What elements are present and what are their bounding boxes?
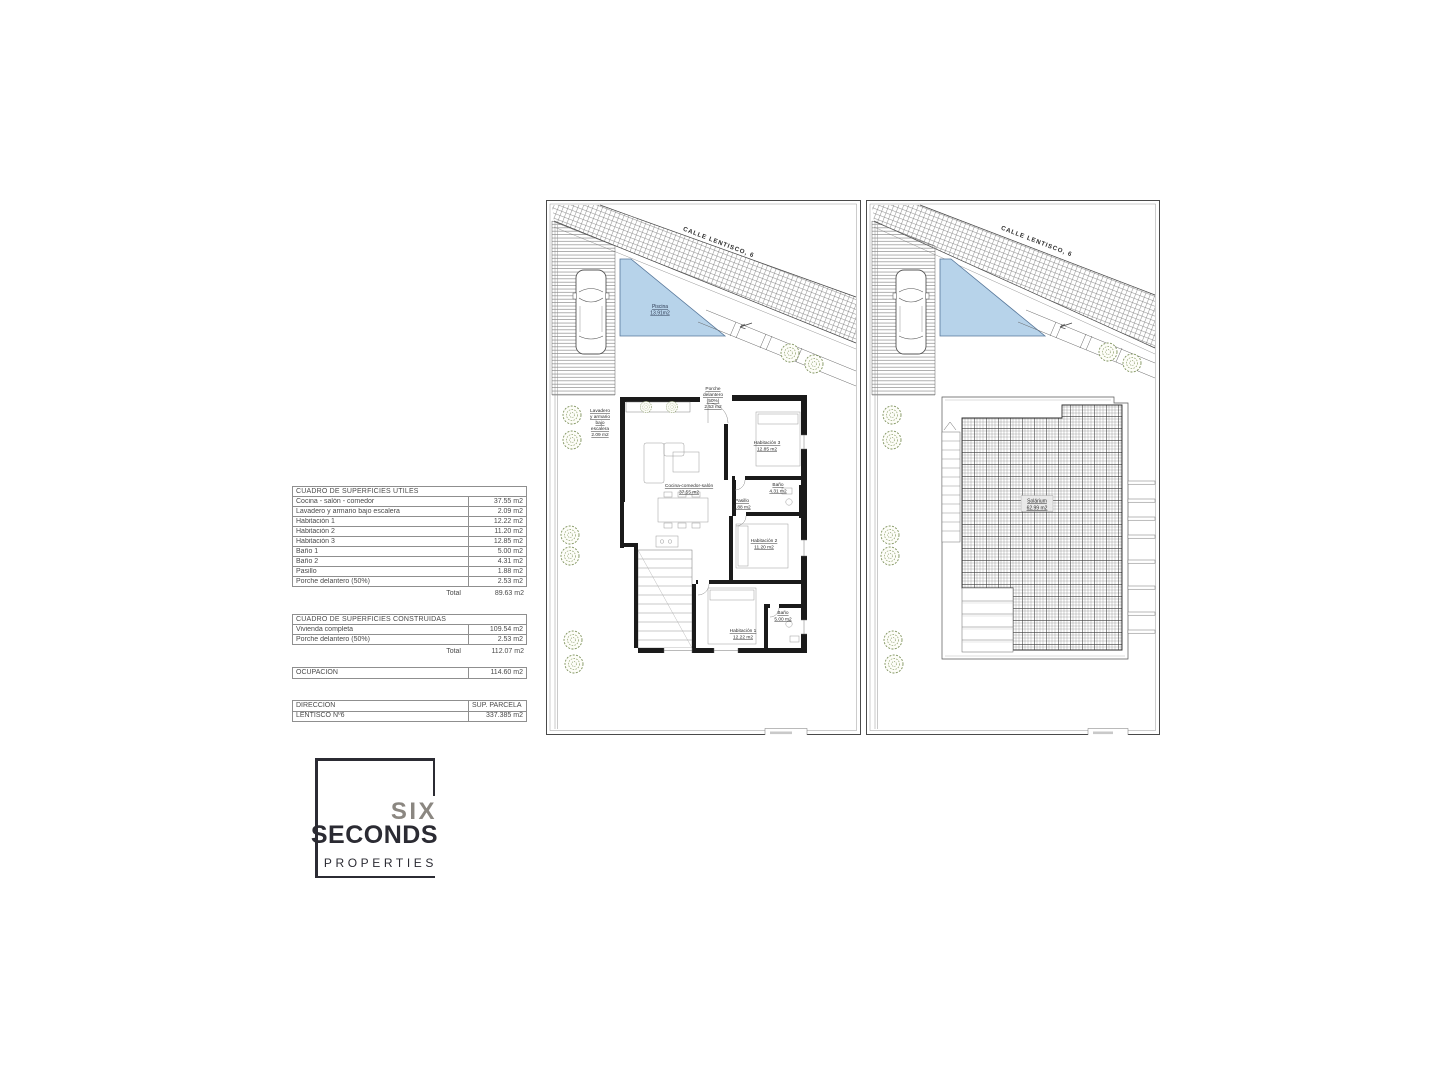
row-label: OCUPACIÓN bbox=[293, 669, 468, 677]
row-value: 4.31 m2 bbox=[468, 557, 526, 566]
row-label: Habitación 1 bbox=[293, 518, 468, 526]
row-value: 12.22 m2 bbox=[468, 517, 526, 526]
surface-tables: CUADRO DE SUPERFICIES ÚTILES Cocina - sa… bbox=[292, 486, 527, 722]
row-label: Porche delantero (50%) bbox=[293, 636, 468, 644]
page: CUADRO DE SUPERFICIES ÚTILES Cocina - sa… bbox=[0, 0, 1440, 1080]
room-label: Pasillo bbox=[735, 498, 749, 504]
table-row: Lavadero y armario bajo escalera2.09 m2 bbox=[292, 507, 527, 517]
room-label: 4.31 m2 bbox=[769, 489, 787, 495]
room-label: Lavadero bbox=[590, 408, 610, 414]
pool-label: Piscina bbox=[652, 304, 668, 310]
room-label: Habitación 2 bbox=[751, 538, 778, 544]
row-value: 109.54 m2 bbox=[468, 625, 526, 634]
row-value: 5.00 m2 bbox=[468, 547, 526, 556]
room-label: Cocina-comedor-salón bbox=[665, 483, 714, 489]
bush-icon bbox=[1099, 343, 1117, 361]
total-value: 89.63 m2 bbox=[469, 587, 527, 600]
table-row: CUADRO DE SUPERFICIES ÚTILES bbox=[292, 487, 527, 497]
room-label: Habitación 1 bbox=[730, 628, 757, 634]
table-total-row: Total112.07 m2 bbox=[292, 645, 527, 658]
room-label: (50%) bbox=[707, 398, 720, 404]
row-value: 1.88 m2 bbox=[468, 567, 526, 576]
row-label: Vivienda completa bbox=[293, 626, 468, 634]
solarium-roof: Solárium 62.99 m2 bbox=[942, 397, 1155, 659]
solarium-label: Solárium 62.99 m2 bbox=[1021, 496, 1053, 512]
porch-planter bbox=[626, 401, 690, 412]
row-value: 2.09 m2 bbox=[468, 507, 526, 516]
row-value: 337.385 m2 bbox=[468, 712, 526, 722]
logo-text-seconds: SECONDS bbox=[311, 824, 438, 847]
total-label: Total bbox=[292, 590, 469, 598]
room-label: 1.88 m2 bbox=[733, 505, 751, 511]
title-strip bbox=[1088, 729, 1128, 736]
row-label: Pasillo bbox=[293, 568, 468, 576]
table-row: LENTISCO Nº6 337.385 m2 bbox=[292, 712, 527, 723]
row-value: SUP. PARCELA bbox=[468, 701, 526, 711]
table-superficies-construidas: CUADRO DE SUPERFICIES CONSTRUIDAS Vivien… bbox=[292, 614, 527, 658]
table-row: DIRECCIÓN SUP. PARCELA bbox=[292, 701, 527, 712]
room-label: escalera bbox=[591, 426, 609, 432]
stairs bbox=[962, 588, 1013, 652]
table-row: Pasillo1.88 m2 bbox=[292, 567, 527, 577]
room-label: 5.00 m2 bbox=[774, 617, 792, 623]
room-label: Habitación 3 bbox=[754, 440, 781, 446]
roof-plan: CALLE LENTISCO, 6 bbox=[866, 200, 1160, 735]
pool-area: 13.91m2 bbox=[650, 311, 670, 317]
room-label: 2.53 m2 bbox=[704, 404, 722, 410]
room-label: Solárium bbox=[1027, 499, 1047, 505]
table-title: CUADRO DE SUPERFICIES CONSTRUIDAS bbox=[293, 616, 526, 624]
car-icon bbox=[893, 270, 929, 354]
row-value: 11.20 m2 bbox=[468, 527, 526, 536]
room-label: 12.22 m2 bbox=[733, 635, 753, 641]
bush-icon bbox=[805, 355, 823, 373]
room-label: 37.55 m2 bbox=[679, 490, 699, 496]
table-total-row: Total89.63 m2 bbox=[292, 587, 527, 600]
logo-border bbox=[315, 876, 435, 879]
table-row: Baño 24.31 m2 bbox=[292, 557, 527, 567]
bush-icon bbox=[781, 344, 799, 362]
table-row: Habitación 112.22 m2 bbox=[292, 517, 527, 527]
logo-border bbox=[315, 758, 318, 878]
house: Porche delantero (50%) 2.53 m2 Lavadero … bbox=[590, 386, 807, 653]
table-row: Porche delantero (50%)2.53 m2 bbox=[292, 577, 527, 587]
row-value: 2.53 m2 bbox=[468, 635, 526, 644]
table-title: CUADRO DE SUPERFICIES ÚTILES bbox=[293, 488, 526, 496]
row-label: Habitación 2 bbox=[293, 528, 468, 536]
total-label: Total bbox=[292, 648, 469, 656]
row-value: 12.85 m2 bbox=[468, 537, 526, 546]
room-label: delantero bbox=[703, 392, 723, 398]
row-label: LENTISCO Nº6 bbox=[293, 712, 468, 720]
row-label: Cocina - salón - comedor bbox=[293, 498, 468, 506]
table-superficies-utiles: CUADRO DE SUPERFICIES ÚTILES Cocina - sa… bbox=[292, 486, 527, 600]
table-row: OCUPACIÓN 114.60 m2 bbox=[292, 668, 527, 679]
room-label: 11.20 m2 bbox=[754, 545, 774, 551]
table-row: CUADRO DE SUPERFICIES CONSTRUIDAS bbox=[292, 615, 527, 625]
table-row: Habitación 312.85 m2 bbox=[292, 537, 527, 547]
room-label: 12.85 m2 bbox=[757, 447, 777, 453]
row-label: Lavadero y armario bajo escalera bbox=[293, 508, 468, 516]
logo-text-six: SIX bbox=[391, 801, 437, 823]
table-row: Porche delantero (50%)2.53 m2 bbox=[292, 635, 527, 645]
room-label: Baño bbox=[772, 482, 784, 488]
room-label: 62.99 m2 bbox=[1027, 506, 1048, 512]
room-label: Baño bbox=[777, 610, 789, 616]
room-label: bajo bbox=[595, 420, 604, 426]
table-row: Baño 15.00 m2 bbox=[292, 547, 527, 557]
stairs bbox=[942, 422, 960, 542]
table-row: Habitación 211.20 m2 bbox=[292, 527, 527, 537]
total-value: 112.07 m2 bbox=[469, 645, 527, 658]
ground-floor-plan: CALLE LENTISCO, 6 Piscina 13.91m2 bbox=[546, 200, 861, 735]
row-label: DIRECCIÓN bbox=[293, 702, 468, 710]
row-value: 114.60 m2 bbox=[468, 668, 526, 678]
six-seconds-logo: SIX SECONDS PROPERTIES bbox=[315, 758, 437, 878]
row-value: 2.53 m2 bbox=[468, 577, 526, 586]
room-label: Porche bbox=[705, 386, 721, 392]
stairs bbox=[638, 550, 692, 648]
row-label: Baño 2 bbox=[293, 558, 468, 566]
row-label: Baño 1 bbox=[293, 548, 468, 556]
driveway bbox=[872, 221, 935, 395]
table-row: Vivienda completa109.54 m2 bbox=[292, 625, 527, 635]
driveway bbox=[552, 221, 615, 395]
title-strip bbox=[765, 729, 807, 736]
logo-border bbox=[315, 758, 435, 761]
table-direccion: DIRECCIÓN SUP. PARCELA LENTISCO Nº6 337.… bbox=[292, 700, 527, 722]
table-ocupacion: OCUPACIÓN 114.60 m2 bbox=[292, 667, 527, 679]
row-label: Porche delantero (50%) bbox=[293, 578, 468, 586]
logo-border bbox=[433, 758, 436, 796]
row-label: Habitación 3 bbox=[293, 538, 468, 546]
room-label: y armario bbox=[590, 414, 610, 420]
car-icon bbox=[573, 270, 609, 354]
bush-icon bbox=[1123, 354, 1141, 372]
table-row: Cocina - salón - comedor37.55 m2 bbox=[292, 497, 527, 507]
room-label: 2.09 m2 bbox=[591, 432, 609, 438]
row-value: 37.55 m2 bbox=[468, 497, 526, 506]
logo-text-properties: PROPERTIES bbox=[324, 857, 437, 869]
